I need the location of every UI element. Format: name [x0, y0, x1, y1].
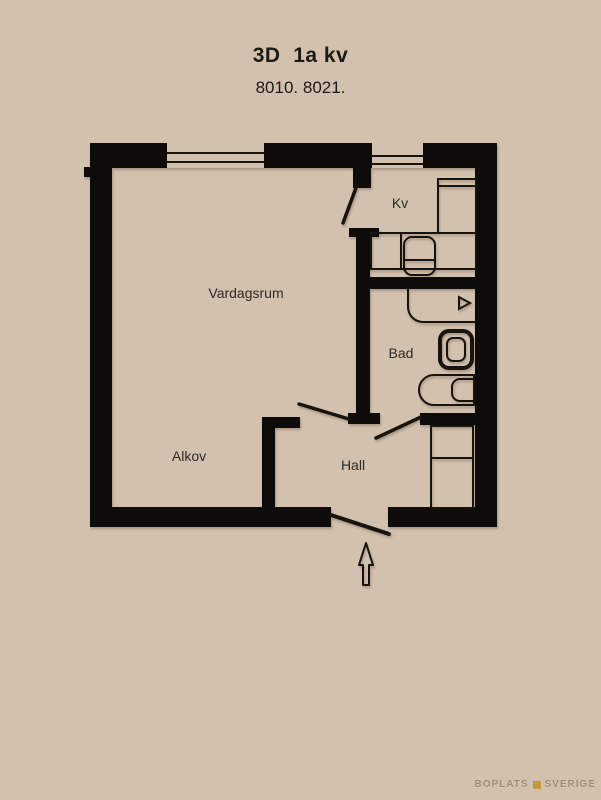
shower — [407, 289, 475, 323]
wall-kitchen-left-cap-bottom — [348, 413, 380, 424]
wardrobe-divider-line — [432, 457, 472, 459]
room-label-alcove: Alkov — [172, 448, 206, 464]
wall-bottom-left — [90, 507, 331, 527]
window-glass-line — [372, 163, 423, 165]
hall-door-swing — [299, 404, 349, 419]
kitchen-door-swing — [343, 185, 357, 223]
room-label-bathroom: Bad — [389, 345, 414, 361]
room-label-kitchen: Kv — [392, 195, 408, 211]
wall-top — [90, 143, 497, 168]
wall-kitchen-bathroom — [356, 277, 477, 289]
toilet-bowl — [446, 337, 466, 362]
window-glass-line — [167, 152, 264, 154]
wall-left — [90, 143, 112, 527]
wall-alcove-divider-stub — [262, 417, 300, 428]
bathroom-door-swing — [376, 417, 421, 438]
kitchen-cabinet — [437, 178, 477, 234]
watermark-text-right: SVERIGE — [545, 779, 596, 790]
entrance-door-swing — [331, 515, 389, 534]
window-glass-line — [372, 155, 423, 157]
watermark-text-left: BOPLATS — [474, 779, 528, 790]
floor-plan — [0, 0, 601, 800]
floor-plan-page: 3D 1a kv 8010. 8021. — [0, 0, 601, 800]
watermark-logo-square — [533, 781, 541, 789]
wall-alcove-divider — [262, 417, 275, 527]
window-livingroom — [167, 143, 264, 168]
watermark: BOPLATS SVERIGE — [474, 779, 596, 790]
entrance-arrow — [359, 543, 373, 585]
room-label-vardagsrum: Vardagsrum — [208, 285, 283, 301]
wall-bathroom-bottom — [420, 413, 477, 425]
wall-left-nub — [84, 167, 90, 177]
kitchen-sink — [403, 236, 436, 276]
wall-kitchen-left — [356, 228, 370, 424]
wall-bottom-right — [388, 507, 497, 527]
hall-wardrobe — [430, 425, 474, 509]
bathtub-inner — [451, 378, 475, 402]
window-kitchen — [372, 143, 423, 168]
cabinet-divider-line — [439, 185, 475, 187]
wall-stub-kitchen-door — [353, 168, 371, 188]
window-glass-line — [167, 161, 264, 163]
sink-divider-line — [405, 259, 434, 261]
room-label-hall: Hall — [341, 457, 365, 473]
counter-divider-line — [400, 234, 402, 268]
wall-right — [475, 143, 497, 527]
